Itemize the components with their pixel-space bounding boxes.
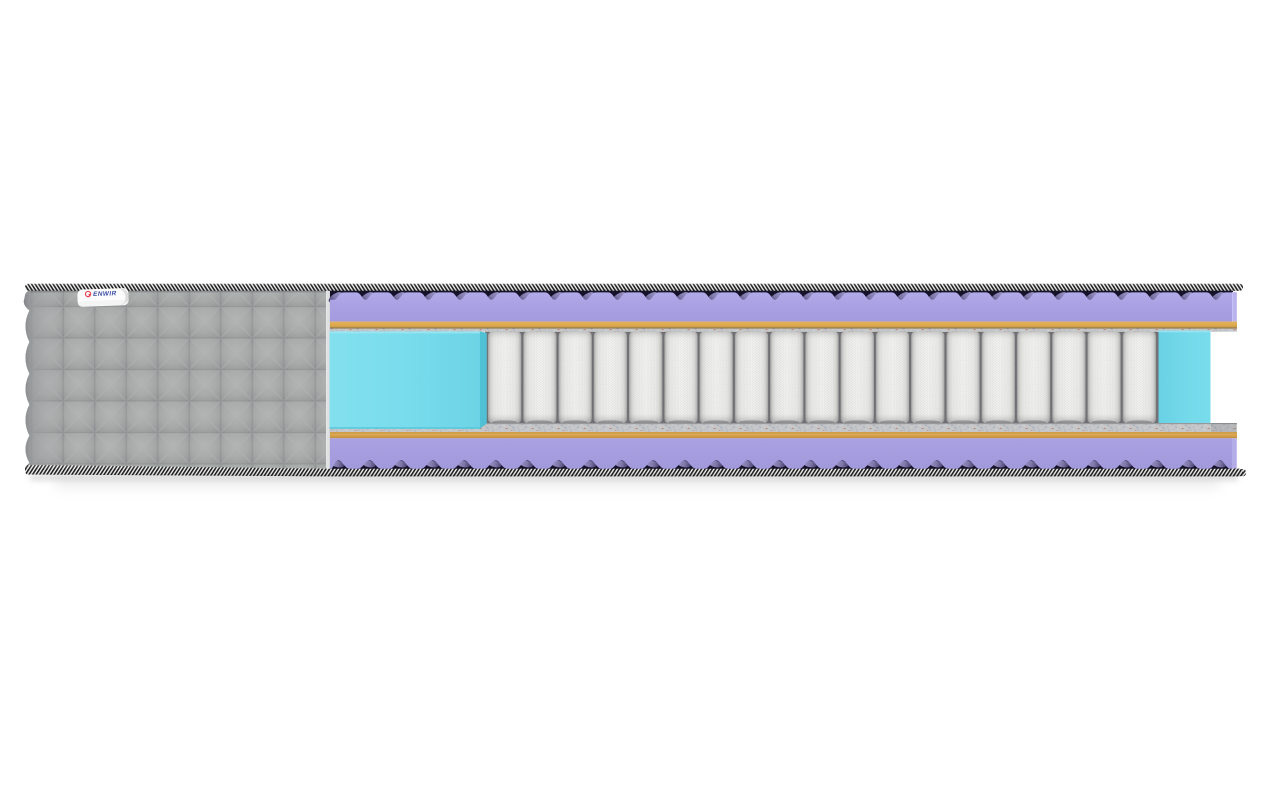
svg-text:ENWIR: ENWIR bbox=[93, 290, 117, 298]
